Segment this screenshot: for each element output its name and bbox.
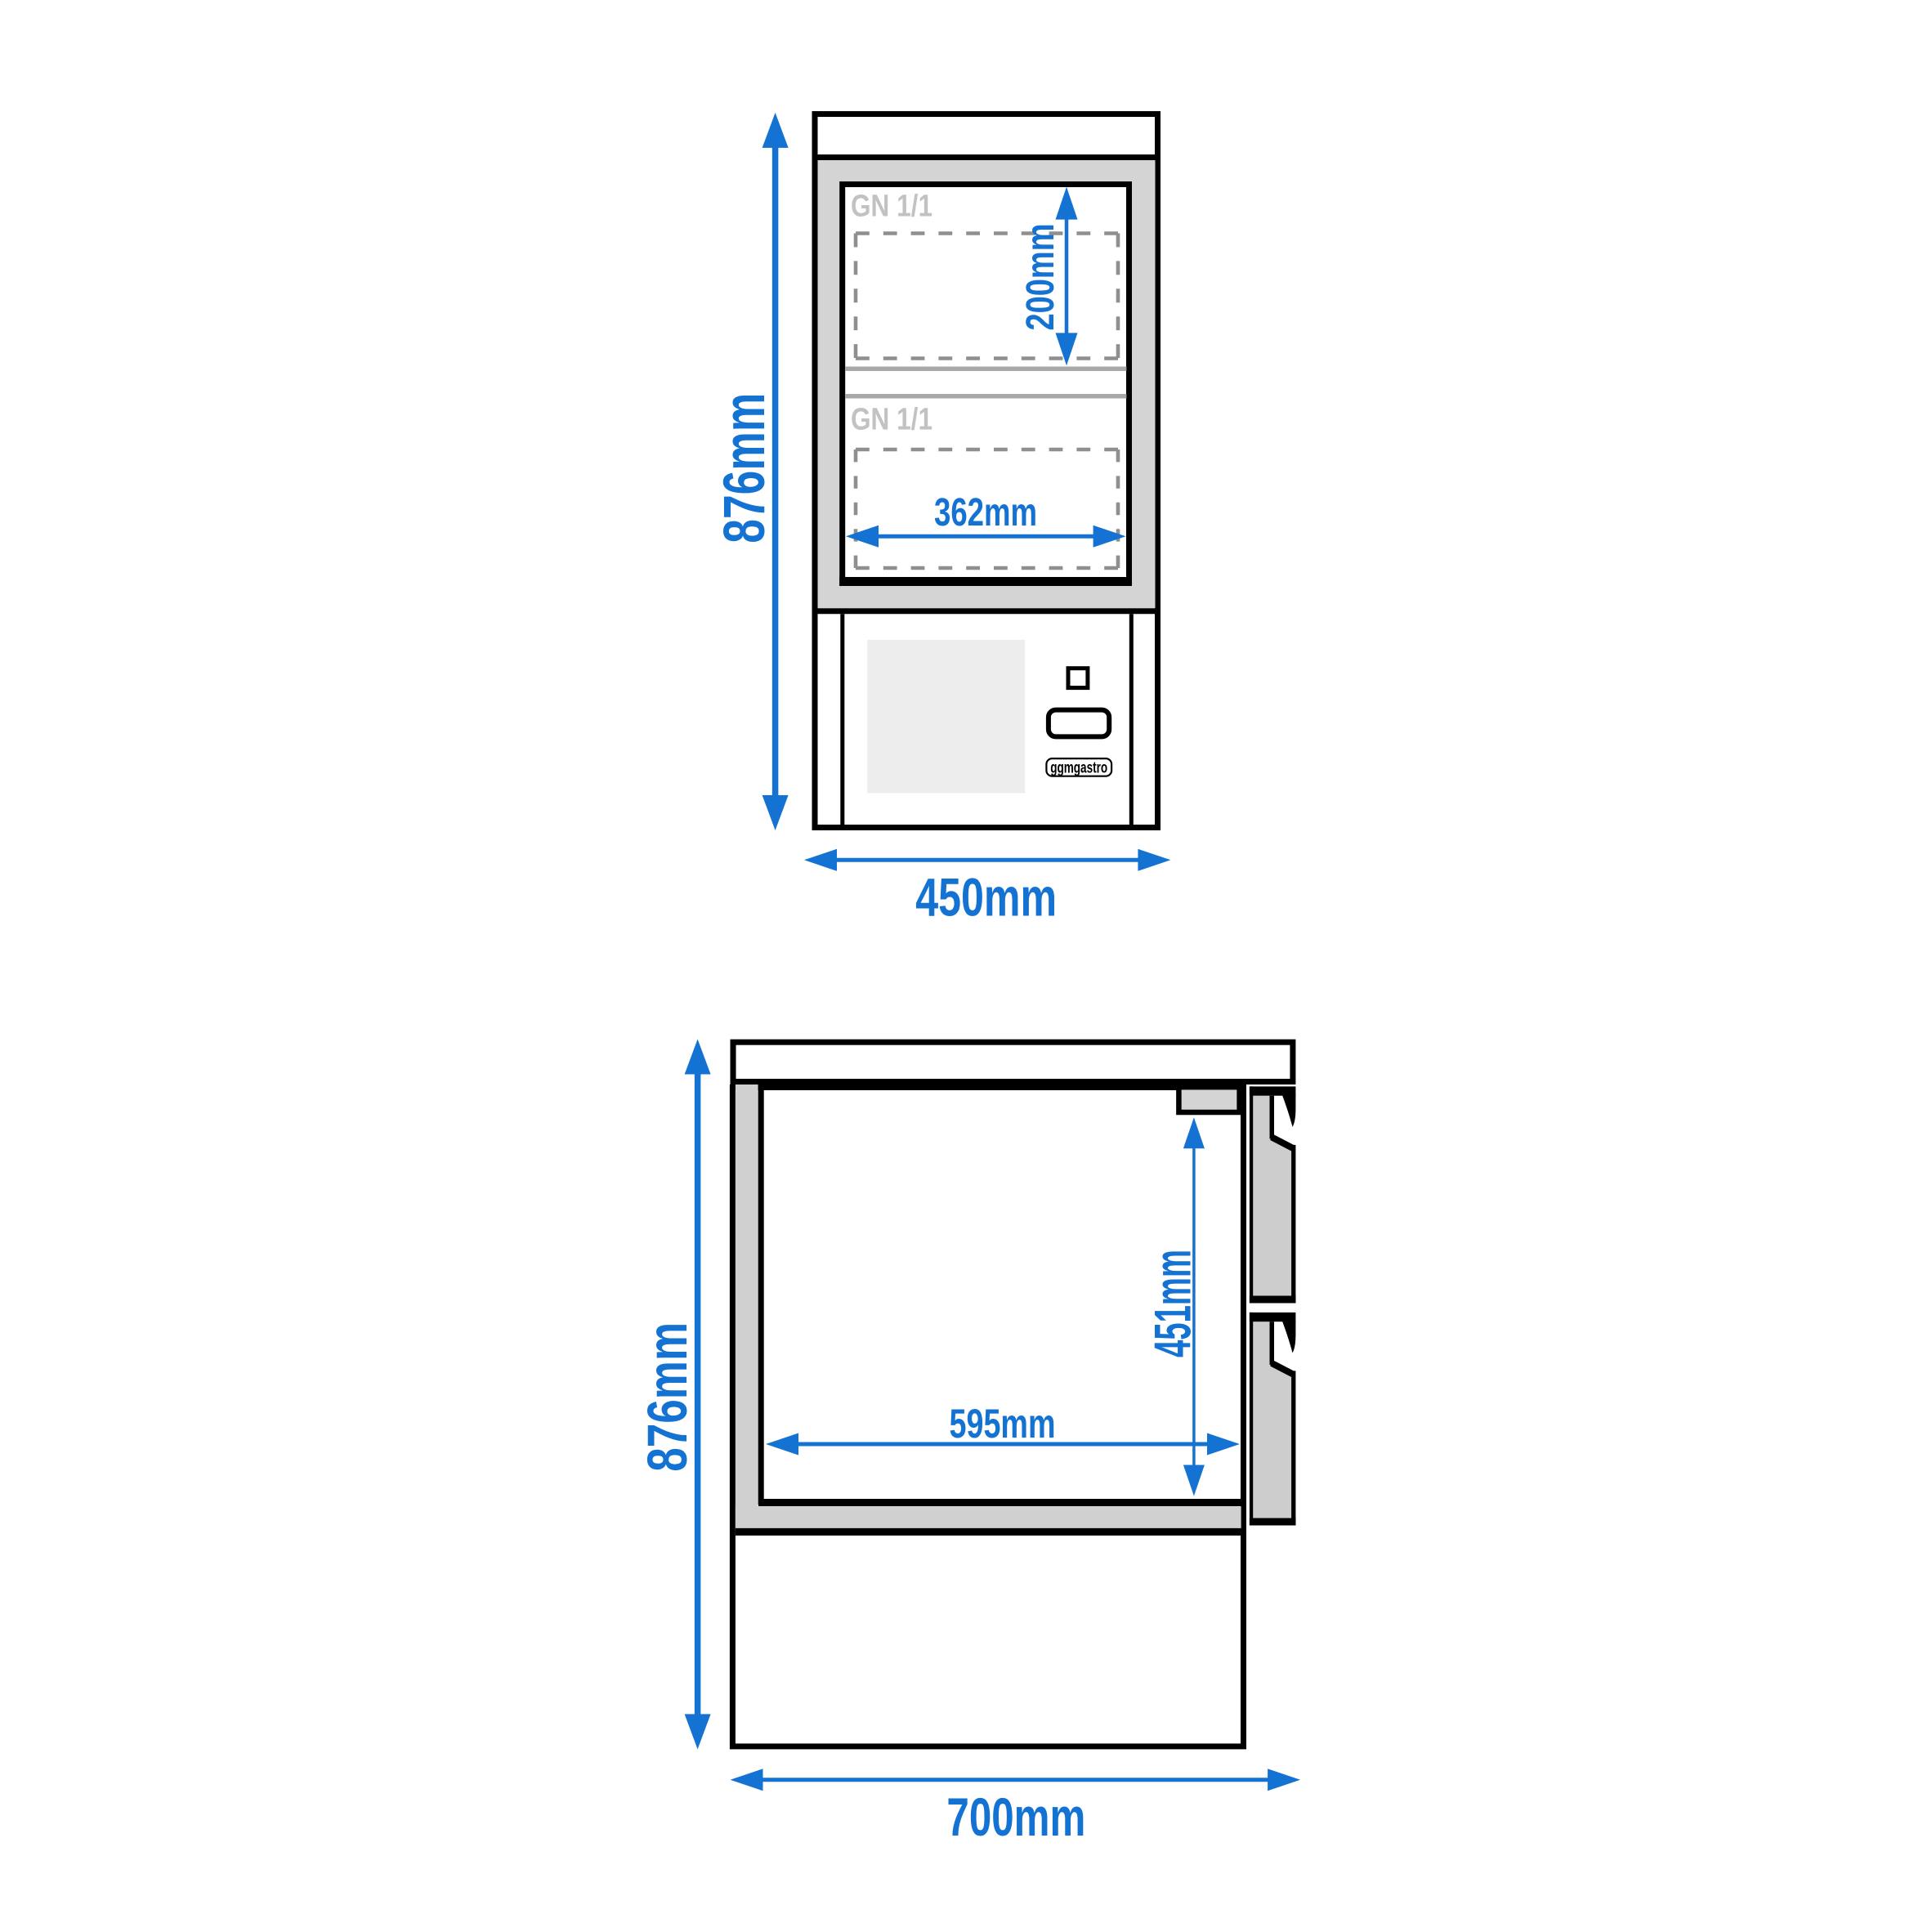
svg-text:GN 1/1: GN 1/1 xyxy=(851,403,932,437)
svg-text:ggmgastro: ggmgastro xyxy=(1050,760,1107,777)
svg-text:451mm: 451mm xyxy=(1144,1250,1201,1357)
svg-text:GN 1/1: GN 1/1 xyxy=(851,190,932,224)
svg-text:700mm: 700mm xyxy=(946,1787,1085,1847)
svg-text:595mm: 595mm xyxy=(950,1401,1056,1447)
svg-text:200mm: 200mm xyxy=(1019,224,1062,331)
svg-text:876mm: 876mm xyxy=(712,393,777,543)
svg-text:362mm: 362mm xyxy=(934,491,1037,534)
svg-text:876mm: 876mm xyxy=(636,1322,699,1472)
svg-text:450mm: 450mm xyxy=(915,867,1057,928)
